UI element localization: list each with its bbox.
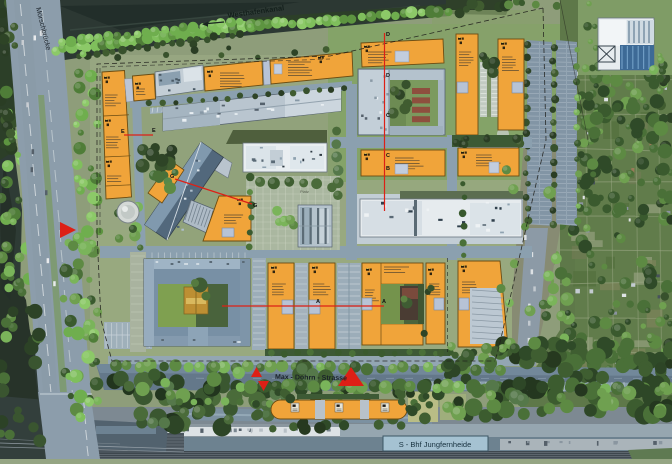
svg-text:E: E [121, 129, 125, 135]
svg-text:D: D [386, 32, 390, 38]
svg-text:B: B [386, 166, 390, 172]
svg-text:A: A [316, 299, 320, 305]
svg-text:Max - Dohrn - Strasse: Max - Dohrn - Strasse [275, 374, 347, 382]
svg-text:C: C [386, 113, 390, 119]
svg-text:G: G [170, 174, 174, 180]
svg-text:Platz: Platz [300, 189, 309, 194]
svg-text:G: G [253, 203, 257, 209]
svg-text:E: E [152, 128, 156, 134]
svg-text:D: D [386, 73, 390, 79]
svg-text:C: C [386, 153, 390, 159]
svg-text:S - Bhf Jungfernheide: S - Bhf Jungfernheide [399, 440, 472, 449]
svg-text:A: A [382, 299, 386, 305]
